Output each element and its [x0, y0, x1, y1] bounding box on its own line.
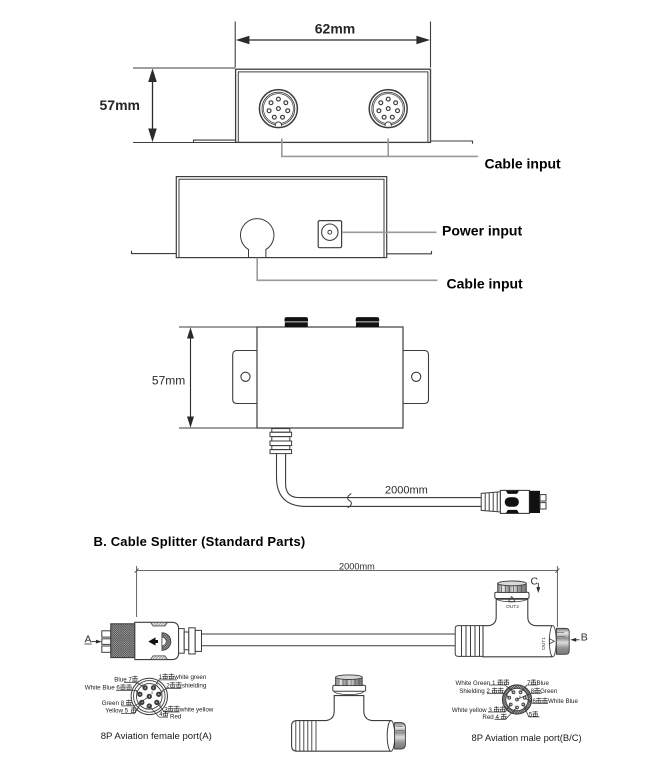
- svg-text:White yellow 3: White yellow 3: [452, 707, 492, 714]
- svg-text:6: 6: [532, 698, 536, 705]
- svg-text:2: 2: [166, 683, 170, 690]
- svg-text:Blue 7: Blue 7: [114, 676, 132, 683]
- svg-text:White Blue 6: White Blue 6: [85, 685, 121, 692]
- svg-text:5: 5: [529, 712, 533, 719]
- svg-text:8P Aviation male port(B/C): 8P Aviation male port(B/C): [472, 732, 582, 743]
- svg-text:Red 4: Red 4: [482, 714, 499, 721]
- svg-text:Green 8: Green 8: [102, 700, 125, 707]
- svg-text:Cable input: Cable input: [447, 275, 524, 291]
- svg-text:Green: Green: [540, 688, 558, 695]
- svg-text:White Blue: White Blue: [548, 698, 578, 705]
- svg-text:4: 4: [145, 707, 147, 711]
- svg-text:white green: white green: [173, 674, 207, 681]
- svg-text:OUT2: OUT2: [506, 604, 519, 610]
- svg-text:62mm: 62mm: [315, 21, 355, 37]
- svg-text:4: 4: [159, 711, 163, 718]
- svg-text:2000mm: 2000mm: [339, 562, 375, 572]
- svg-text:8: 8: [151, 691, 153, 695]
- svg-text:Shielding 2: Shielding 2: [459, 688, 490, 695]
- svg-text:8P Aviation female port(A): 8P Aviation female port(A): [101, 731, 212, 742]
- svg-text:8: 8: [531, 688, 535, 695]
- svg-text:OUT1: OUT1: [541, 637, 547, 650]
- svg-text:3: 3: [164, 706, 168, 713]
- svg-text:1: 1: [159, 674, 163, 681]
- svg-text:57mm: 57mm: [152, 374, 185, 388]
- svg-text:C: C: [531, 575, 539, 587]
- svg-text:Red: Red: [170, 714, 182, 721]
- svg-text:B. Cable Splitter (Standard P: B. Cable Splitter (Standard Parts): [94, 534, 306, 549]
- svg-text:white yellow: white yellow: [179, 706, 214, 713]
- svg-text:2000mm: 2000mm: [385, 485, 428, 497]
- svg-text:Power input: Power input: [442, 223, 522, 239]
- svg-text:shielding: shielding: [182, 683, 207, 690]
- svg-text:Blue: Blue: [537, 680, 550, 687]
- svg-text:Yellow 5: Yellow 5: [105, 708, 128, 715]
- svg-text:Cable input: Cable input: [485, 156, 562, 172]
- svg-text:White Green 1: White Green 1: [456, 680, 496, 687]
- svg-text:7: 7: [527, 680, 531, 687]
- svg-text:57mm: 57mm: [100, 97, 140, 113]
- svg-text:B: B: [581, 631, 588, 643]
